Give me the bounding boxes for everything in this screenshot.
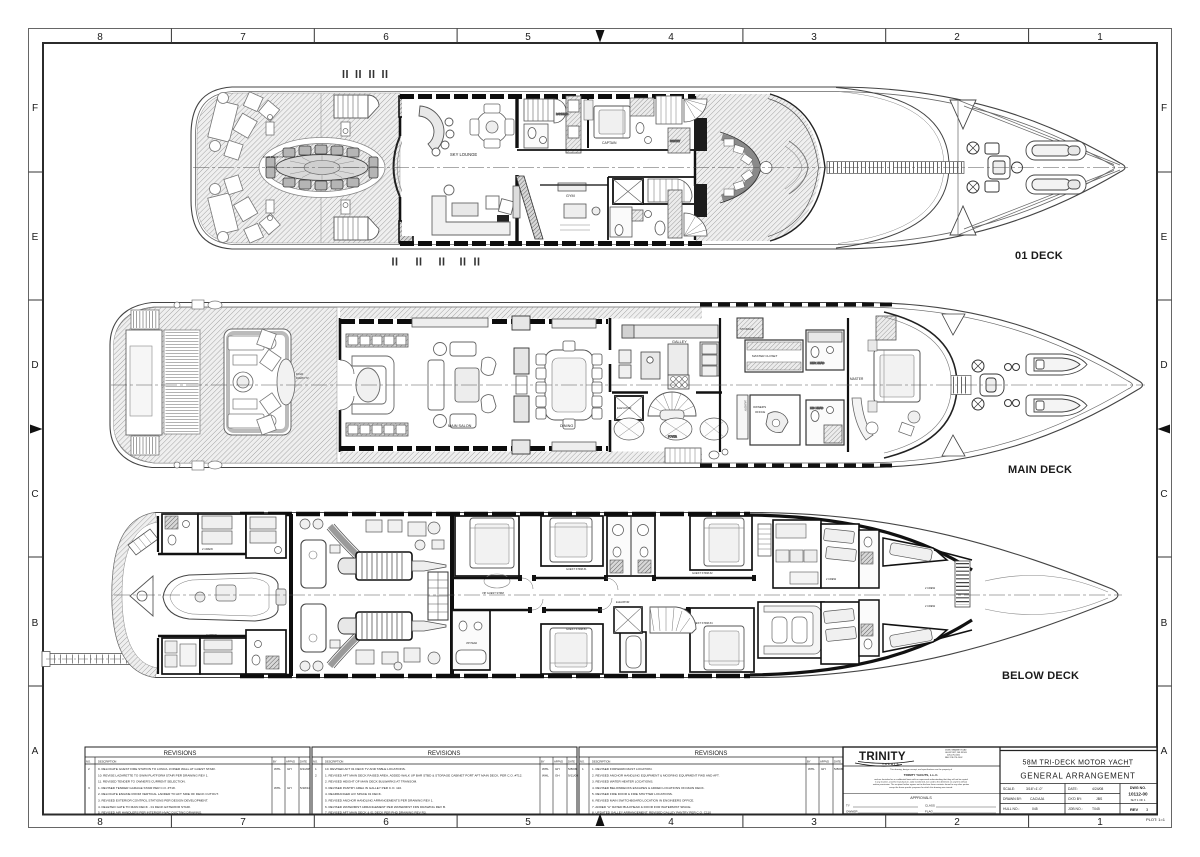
svg-text:4: 4 [668,32,674,43]
svg-text:ELEVATOR: ELEVATOR [617,406,631,410]
svg-text:NO.: NO. [580,760,585,764]
svg-text:9. RELOCATE GUEST FIRE STATIO: 9. RELOCATE GUEST FIRE STATION TO LONG'L… [98,767,216,771]
svg-text:5. REVISED AIR HANDLERS PER I: 5. REVISED AIR HANDLERS PER INTERIOR HVA… [98,810,202,814]
svg-text:F: F [32,103,38,114]
svg-text:3: 3 [811,32,817,43]
svg-text:6: 6 [383,817,389,828]
svg-text:2: 2 [954,817,960,828]
svg-text:5/8/08: 5/8/08 [568,767,577,771]
svg-text:4. REARRANGED A/V SPACE 01 DE: 4. REARRANGED A/V SPACE 01 DECK. [325,792,382,796]
svg-text:FAX 228-276-1002: FAX 228-276-1002 [945,756,963,759]
svg-text:APPVD: APPVD [554,760,563,764]
svg-text:DATE: DATE [568,760,575,764]
svg-text:PLOT: 1=1: PLOT: 1=1 [1146,817,1166,822]
svg-text:DESCRIPTION: DESCRIPTION [325,760,343,764]
svg-text:DESCRIPTION: DESCRIPTION [98,760,116,764]
svg-text:8: 8 [97,817,103,828]
svg-text:OWNER'S: OWNER'S [753,405,766,409]
svg-text:4. DELETED GATE TO MAIN DECK: 4. DELETED GATE TO MAIN DECK - 01 DECK E… [98,805,191,809]
svg-text:2 CREW: 2 CREW [925,586,936,590]
svg-text:3/16"=1'-0": 3/16"=1'-0" [1026,787,1043,791]
svg-text:10. REVISE LAZARETTE TO SWIM P: 10. REVISE LAZARETTE TO SWIM PLATFORM ST… [98,773,209,777]
svg-text:3. REVISED EXTERIOR CONTROL S: 3. REVISED EXTERIOR CONTROL STATIONS PER… [98,799,208,803]
svg-text:CLASS: CLASS [925,804,935,808]
svg-text:DATE:: DATE: [1068,787,1078,791]
svg-text:JOB NO.:: JOB NO.: [1068,807,1083,811]
svg-text:2. REVISED ANCHOR HANDLING EQ: 2. REVISED ANCHOR HANDLING EQUIPMENT & M… [592,773,720,777]
svg-text:FOYER: FOYER [668,435,677,439]
svg-text:TRINITY YACHTS, L.L.C.: TRINITY YACHTS, L.L.C. [904,773,939,777]
svg-text:HIS HEAD: HIS HEAD [810,406,823,410]
svg-text:5/8/08: 5/8/08 [834,767,843,771]
svg-text:8: 8 [97,32,103,43]
svg-text:58M TRI-DECK MOTOR YACHT: 58M TRI-DECK MOTOR YACHT [1023,760,1134,767]
svg-text:1. REVISED AFT MAIN DECK RAIS: 1. REVISED AFT MAIN DECK RAISED AREA, AD… [325,773,523,777]
svg-text:4: 4 [668,817,674,828]
svg-text:BELOW DECK: BELOW DECK [1002,670,1079,682]
svg-text:FOLD: FOLD [296,372,303,376]
svg-text:WHL: WHL [274,786,281,790]
svg-text:BY: BY [273,760,277,764]
svg-text:E: E [1161,232,1168,243]
svg-text:7: 7 [240,817,246,828]
svg-text:DESCRIPTION: DESCRIPTION [592,760,610,764]
svg-text:MASTER CLOSET: MASTER CLOSET [752,354,778,358]
svg-text:WHL: WHL [274,767,281,771]
svg-text:VIP GUEST STRM: VIP GUEST STRM [482,591,504,595]
svg-text:7. ADDED "A" RATED BULKHEAD &: 7. ADDED "A" RATED BULKHEAD & DOOR FOR W… [592,805,691,809]
svg-text:NO.: NO. [313,760,318,764]
svg-text:DRAWN BY:: DRAWN BY: [1003,797,1022,801]
svg-text:E: E [32,232,39,243]
svg-text:A: A [32,746,39,757]
svg-text:HULL NO.:: HULL NO.: [1003,807,1020,811]
svg-text:DATE: DATE [834,760,841,764]
svg-text:CAPTAIN: CAPTAIN [602,141,617,145]
svg-text:MAIN DECK: MAIN DECK [1008,464,1072,476]
svg-text:APPVD: APPVD [820,760,829,764]
svg-text:WHL: WHL [542,767,549,771]
svg-text:5. REVISED ANCHOR HANDLING AR: 5. REVISED ANCHOR HANDLING ARRANGEMENTS … [325,799,433,803]
svg-text:B: B [1161,618,1168,629]
svg-text:GH: GH [555,767,560,771]
svg-text:5: 5 [525,32,531,43]
svg-text:REVISIONS: REVISIONS [428,751,461,757]
svg-text:4. REVISED BELOWDECKS ESCAPES: 4. REVISED BELOWDECKS ESCAPES & ADDED LO… [592,786,705,790]
svg-text:DINING: DINING [560,424,573,428]
svg-text:GENERAL ARRANGEMENT: GENERAL ARRANGEMENT [1020,772,1135,781]
svg-text:BY: BY [807,760,811,764]
svg-text:DATE: DATE [300,760,307,764]
svg-text:in any manner, used for manufa: in any manner, used for manufacture, sol… [875,781,968,784]
svg-text:GUEST STRM #1: GUEST STRM #1 [566,567,587,571]
svg-text:HER HEAD: HER HEAD [810,361,824,365]
svg-text:9/11/08: 9/11/08 [300,767,310,771]
svg-text:GH: GH [821,767,826,771]
svg-text:This drawing, design concept,: This drawing, design concept, and specif… [890,768,953,771]
svg-text:2. RELOCATE ENGINE ROOM VERTI: 2. RELOCATE ENGINE ROOM VERTICAL LADDER … [98,792,219,796]
svg-text:9/11/08: 9/11/08 [568,773,578,777]
svg-text:LAUNDRY: LAUNDRY [744,400,747,412]
svg-text:10. REVISED AFT 01 DECK TV AN: 10. REVISED AFT 01 DECK TV AND TABLE LOC… [325,767,406,771]
svg-text:APPVD: APPVD [286,760,295,764]
svg-text:REV: REV [1130,807,1139,812]
svg-text:APPROVALS: APPROVALS [910,796,932,800]
svg-text:WHL: WHL [542,773,549,777]
svg-text:1. REVISED TENDER GARAGE STAI: 1. REVISED TENDER GARAGE STAIR PER C.O. … [98,786,176,790]
svg-text:D: D [31,360,38,371]
svg-text:5. REVISED FIRE DOOR & FIRE S: 5. REVISED FIRE DOOR & FIRE SHUTTER LOCA… [592,792,673,796]
svg-text:C: C [1160,489,1167,500]
svg-text:CK'D BY:: CK'D BY: [1068,797,1082,801]
svg-text:GH: GH [287,786,292,790]
svg-text:3: 3 [88,786,90,790]
svg-text:BY: BY [541,760,545,764]
svg-text:2 CREW: 2 CREW [826,577,837,581]
svg-text:ELEVATOR: ELEVATOR [616,600,630,604]
svg-text:2 CREW: 2 CREW [925,604,936,608]
svg-text:GH: GH [555,773,560,777]
svg-text:written permission. The recipi: written permission. The recipient furthe… [873,783,969,786]
svg-text:SKY LOUNGE: SKY LOUNGE [450,152,477,157]
svg-text:GYM: GYM [566,194,575,198]
svg-text:B: B [32,618,39,629]
svg-text:MAIN SALON: MAIN SALON [448,424,472,428]
svg-text:3: 3 [811,817,817,828]
svg-text:GUEST STRM #3: GUEST STRM #3 [566,627,587,631]
svg-text:8. UPDATED GALLEY ARRANGEMENT: 8. UPDATED GALLEY ARRANGEMENT. REVISED G… [592,810,711,814]
svg-text:1: 1 [1097,32,1103,43]
svg-text:3. REVISED WATER HEATER LOCAT: 3. REVISED WATER HEATER LOCATIONS. [592,780,653,784]
svg-text:045: 045 [1032,807,1038,811]
svg-text:DWG NO.: DWG NO. [1130,786,1146,790]
svg-text:2 CREW: 2 CREW [206,633,217,637]
svg-text:REVISIONS: REVISIONS [164,751,197,757]
svg-text:GH: GH [287,767,292,771]
svg-text:2: 2 [88,767,90,771]
svg-text:FLAG: FLAG [925,810,934,814]
svg-text:D: D [1160,360,1167,371]
svg-text:SCALE:: SCALE: [1003,787,1015,791]
svg-text:4/24/08: 4/24/08 [1092,787,1103,791]
svg-text:5: 5 [525,817,531,828]
svg-text:6. REVISED MAIN SWITCHBOARD L: 6. REVISED MAIN SWITCHBOARD LOCATION IN … [592,799,694,803]
svg-text:C: C [31,489,38,500]
svg-text:1: 1 [1097,817,1103,828]
svg-text:except for those specific purp: except for those specific purposes for w… [889,786,953,789]
svg-text:WHL: WHL [808,767,815,771]
svg-text:5/18/10: 5/18/10 [300,786,311,790]
svg-text:7: 7 [240,32,246,43]
svg-text:10112-00: 10112-00 [1128,792,1148,797]
svg-text:2 CREW: 2 CREW [202,547,213,551]
svg-text:3. REVISED PANTRY AREA IN GAL: 3. REVISED PANTRY AREA IN GALLEY PER C.O… [325,786,402,790]
svg-text:VIP HEAD: VIP HEAD [466,642,477,645]
svg-text:1: 1 [315,767,317,771]
svg-text:OWNER: OWNER [846,810,858,814]
svg-text:and are furnished on a confide: and are furnished on a confidential basi… [874,778,968,781]
svg-text:GALLEY: GALLEY [672,340,687,344]
svg-text:OFFICE: OFFICE [755,410,765,414]
svg-text:7. REVISED AFT MAIN DECK & 01: 7. REVISED AFT MAIN DECK & 01 DECK PER P… [325,810,427,814]
svg-text:SHT 1 OF 1: SHT 1 OF 1 [1131,798,1146,802]
svg-text:TY: TY [846,804,850,808]
svg-text:2: 2 [315,773,317,777]
svg-text:11. REVISED TENDER TO OWNER'S: 11. REVISED TENDER TO OWNER'S CURRENT SE… [98,780,186,784]
svg-text:MASTER: MASTER [850,377,864,381]
svg-text:STORAGE: STORAGE [740,327,754,331]
svg-text:JBS: JBS [1096,797,1103,801]
svg-text:REVISIONS: REVISIONS [695,751,728,757]
svg-text:F: F [1161,103,1167,114]
svg-text:FOLD DOWN TV: FOLD DOWN TV [263,155,284,159]
svg-text:01 DECK: 01 DECK [1015,250,1063,262]
svg-text:CAC/AJA: CAC/AJA [1030,797,1045,801]
svg-text:NO.: NO. [86,760,91,764]
svg-text:DAYHEAD: DAYHEAD [556,112,568,116]
svg-text:PANTRY: PANTRY [670,139,681,143]
svg-text:1: 1 [582,767,584,771]
svg-text:1. REVISED FORWARD MAST LOCAT: 1. REVISED FORWARD MAST LOCATION. [592,767,653,771]
svg-text:2. REVISED HEIGHT OF MAIN DEC: 2. REVISED HEIGHT OF MAIN DECK BULWARKS … [325,780,417,784]
svg-text:T045: T045 [1092,807,1100,811]
svg-text:YACHTS: YACHTS [882,762,899,766]
svg-text:DOWN TV: DOWN TV [296,376,309,380]
svg-text:6: 6 [383,32,389,43]
svg-text:A: A [1161,746,1168,757]
svg-text:2: 2 [954,32,960,43]
svg-text:GUEST STRM #2: GUEST STRM #2 [692,571,713,575]
svg-text:6. REVISED WATERMIST ARRANGEM: 6. REVISED WATERMIST ARRANGEMENT PER WAT… [325,805,446,809]
